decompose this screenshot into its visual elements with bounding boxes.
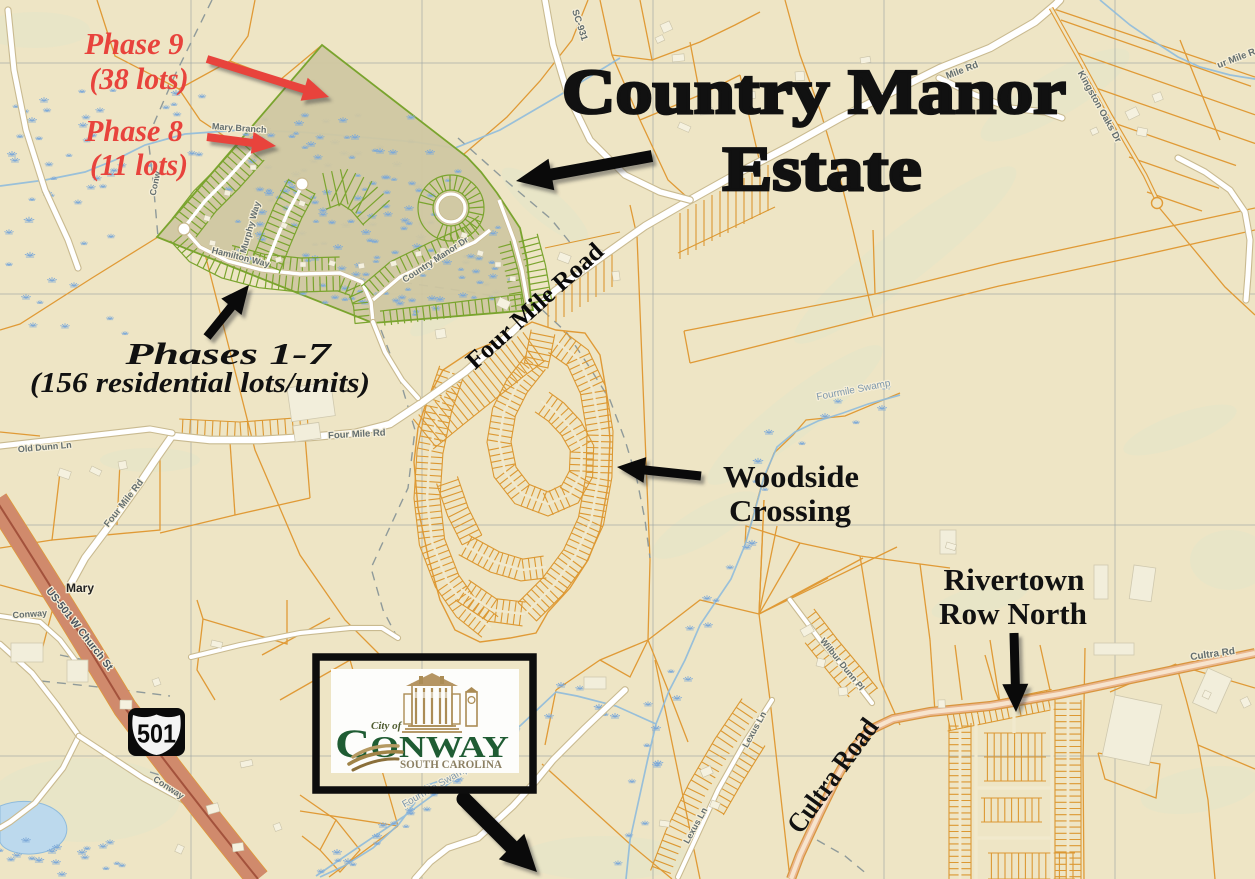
svg-text:(11 lots): (11 lots) — [90, 147, 188, 182]
svg-text:Rivertown: Rivertown — [944, 562, 1085, 597]
svg-text:Estate: Estate — [723, 134, 922, 204]
svg-text:Country Manor: Country Manor — [562, 57, 1066, 127]
svg-text:Crossing: Crossing — [729, 493, 852, 528]
svg-text:(38 lots): (38 lots) — [90, 61, 189, 96]
svg-text:Row North: Row North — [939, 596, 1087, 631]
svg-text:Phase 8: Phase 8 — [84, 113, 183, 148]
svg-text:(156 residential lots/units): (156 residential lots/units) — [30, 367, 370, 399]
svg-text:Mary: Mary — [66, 581, 94, 595]
svg-text:Woodside: Woodside — [723, 459, 859, 494]
svg-text:SOUTH CAROLINA: SOUTH CAROLINA — [400, 759, 503, 771]
svg-text:Phase 9: Phase 9 — [84, 26, 184, 61]
svg-text:501: 501 — [137, 719, 176, 749]
svg-text:Phases 1-7: Phases 1-7 — [124, 336, 333, 371]
